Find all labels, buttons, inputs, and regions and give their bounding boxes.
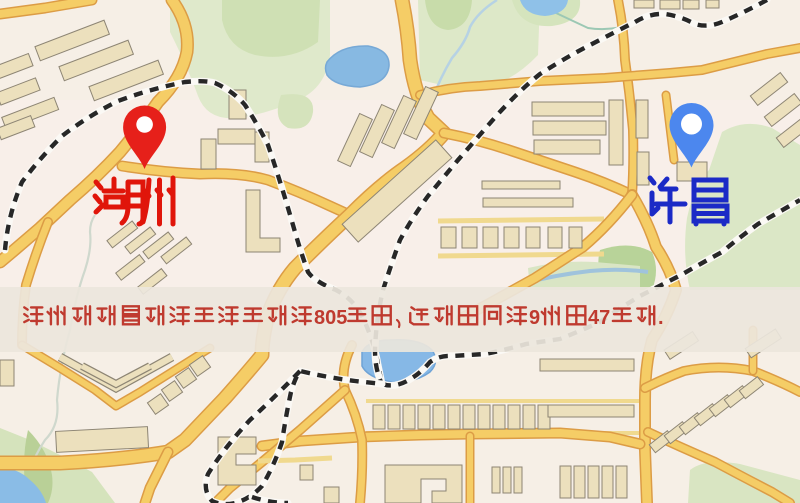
svg-text:805: 805 [314,307,347,329]
svg-text:.: . [658,307,664,329]
svg-text:47: 47 [588,307,610,329]
svg-text:9: 9 [529,307,540,329]
